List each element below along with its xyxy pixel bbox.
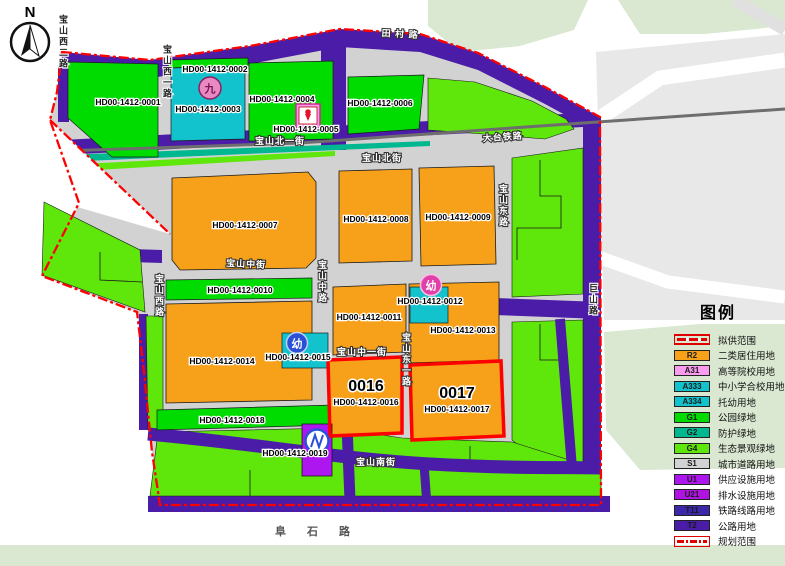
legend-label: 排水设施用地	[718, 488, 775, 502]
legend-swatch-a333: A333	[674, 381, 710, 392]
street-baoshan-bei: 宝山北街	[362, 152, 402, 163]
label-0003: HD00-1412-0003	[175, 104, 240, 114]
label-0010: HD00-1412-0010	[207, 285, 272, 295]
legend-item-r2: R2 二类居住用地	[674, 350, 785, 362]
legend-item-s1: S1 城市道路用地	[674, 458, 785, 470]
north-arrow: N	[11, 4, 49, 61]
label-0012: HD00-1412-0012	[397, 296, 462, 306]
label-0011: HD00-1412-0011	[337, 312, 402, 322]
kindergarten-icon-blue: 幼	[287, 333, 308, 354]
label-0017: HD00-1412-0017	[424, 404, 489, 414]
legend-item-t11: T11 铁路线路用地	[674, 505, 785, 517]
legend-label: 高等院校用地	[718, 364, 775, 378]
bg-green-bottom	[0, 545, 785, 566]
legend-swatch-u21: U21	[674, 489, 710, 500]
street-tiancun: 田 村 路	[381, 27, 419, 40]
legend-item-t2: T2 公路用地	[674, 520, 785, 532]
svg-text:幼: 幼	[426, 279, 437, 293]
street-baoshan-bei1: 宝山北一街	[255, 135, 305, 146]
highlight-number-0017: 0017	[439, 385, 475, 402]
street-jushan: 巨山路	[588, 283, 599, 316]
label-0006: HD00-1412-0006	[347, 98, 412, 108]
legend-label: 托幼用地	[718, 395, 756, 409]
legend-title: 图例	[674, 299, 785, 323]
legend-swatch-s1: S1	[674, 458, 710, 469]
street-baoshan-dong1: 宝山东一路	[401, 331, 412, 387]
svg-text:幼: 幼	[292, 337, 303, 351]
legend-swatch-g1: G1	[674, 412, 710, 423]
street-baoshan-zhong-lu: 宝山中路	[317, 259, 328, 304]
legend-item-plan-scope: 规划范围	[674, 536, 785, 548]
planning-map-page: 九 幼 幼 N 宝山西二路 宝山西一路 田 村 路 大台铁路 宝山北街 宝山北一…	[0, 0, 785, 566]
legend-item-a334: A334 托幼用地	[674, 396, 785, 408]
svg-text:九: 九	[204, 82, 216, 96]
planning-map-canvas: 九 幼 幼 N 宝山西二路 宝山西一路 田 村 路 大台铁路 宝山北街 宝山北一…	[0, 0, 785, 566]
legend-label: 铁路线路用地	[718, 503, 775, 517]
label-0007: HD00-1412-0007	[212, 220, 277, 230]
street-baoshan-xi2: 宝山西二路	[58, 13, 69, 69]
legend-item-supply-scope: 拟供范围	[674, 334, 785, 346]
label-0009: HD00-1412-0009	[425, 212, 490, 222]
street-baoshan-xi1: 宝山西一路	[162, 43, 173, 99]
label-0016: HD00-1412-0016	[333, 397, 398, 407]
south-vertical-road-1	[347, 426, 350, 500]
label-0001: HD00-1412-0001	[95, 97, 160, 107]
g4-east-upper	[512, 148, 583, 297]
street-baoshan-xi: 宝山西路	[154, 273, 165, 318]
north-label: N	[25, 4, 36, 21]
legend-swatch-g2: G2	[674, 427, 710, 438]
legend-swatch-a334: A334	[674, 396, 710, 407]
legend-item-a333: A333 中小学合校用地	[674, 381, 785, 393]
legend-label: 城市道路用地	[718, 457, 775, 471]
legend-item-g2: G2 防护绿地	[674, 427, 785, 439]
legend-swatch-t11: T11	[674, 505, 710, 516]
street-baoshan-nan: 宝山南街	[356, 456, 396, 467]
legend-label: 生态景观绿地	[718, 441, 775, 455]
street-baoshan-zhong1: 宝山中一街	[337, 346, 387, 357]
legend-swatch-u1: U1	[674, 474, 710, 485]
label-0015: HD00-1412-0015	[265, 352, 330, 362]
legend-swatch-plan-scope	[674, 536, 710, 547]
legend-item-g1: G1 公园绿地	[674, 412, 785, 424]
kindergarten-icon-pink: 幼	[421, 275, 442, 296]
south-vertical-road-2	[424, 464, 427, 506]
street-baoshan-dong: 宝山东路	[498, 183, 509, 228]
label-0019: HD00-1412-0019	[262, 448, 327, 458]
legend-panel: 图例 拟供范围 R2 二类居住用地 A31 高等院校用地 A333 中小学合校用…	[674, 299, 785, 551]
label-0018: HD00-1412-0018	[199, 415, 264, 425]
label-0002: HD00-1412-0002	[182, 64, 247, 74]
street-fushi: 阜 石 路	[275, 524, 359, 538]
legend-label: 规划范围	[718, 534, 756, 548]
legend-swatch-g4: G4	[674, 443, 710, 454]
legend-swatch-t2: T2	[674, 520, 710, 531]
legend-item-u21: U21 排水设施用地	[674, 489, 785, 501]
legend-label: 公园绿地	[718, 410, 756, 424]
highlight-number-0016: 0016	[348, 378, 384, 395]
legend-swatch-supply-scope	[674, 334, 710, 345]
legend-item-a31: A31 高等院校用地	[674, 365, 785, 377]
legend-label: 中小学合校用地	[718, 379, 785, 393]
label-0013: HD00-1412-0013	[430, 325, 495, 335]
legend-item-u1: U1 供应设施用地	[674, 474, 785, 486]
legend-label: 拟供范围	[718, 333, 756, 347]
legend-swatch-a31: A31	[674, 365, 710, 376]
label-0014: HD00-1412-0014	[189, 356, 254, 366]
label-0008: HD00-1412-0008	[343, 214, 408, 224]
legend-label: 二类居住用地	[718, 348, 775, 362]
legend-label: 供应设施用地	[718, 472, 775, 486]
label-0004: HD00-1412-0004	[249, 94, 314, 104]
label-0005: HD00-1412-0005	[273, 124, 338, 134]
legend-label: 公路用地	[718, 519, 756, 533]
legend-swatch-r2: R2	[674, 350, 710, 361]
street-baoshan-zhong-jie: 宝山中街	[226, 257, 267, 270]
legend-label: 防护绿地	[718, 426, 756, 440]
nine-year-school-icon: 九	[199, 77, 221, 99]
legend-item-g4: G4 生态景观绿地	[674, 443, 785, 455]
